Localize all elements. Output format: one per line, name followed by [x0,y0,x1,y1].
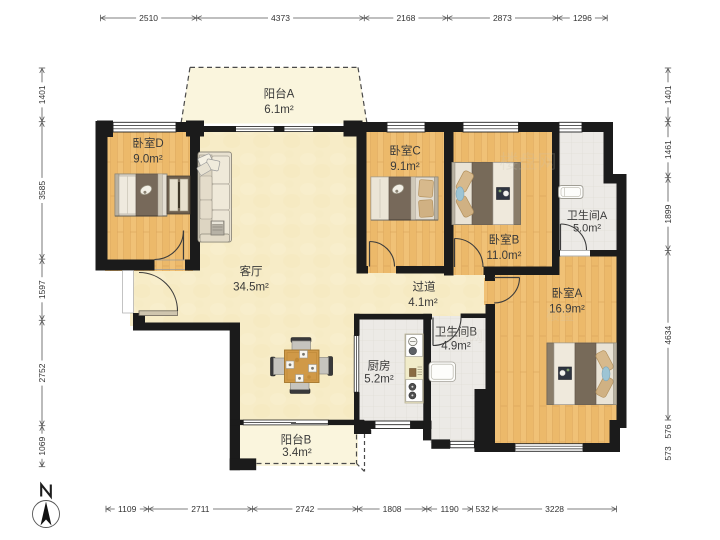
svg-text:楼盘: 楼盘 [546,307,574,323]
svg-text:1109: 1109 [118,504,137,514]
svg-text:1401: 1401 [37,85,47,104]
svg-text:卧室B: 卧室B [489,233,520,247]
svg-text:573: 573 [663,446,673,460]
svg-text:1296: 1296 [573,13,592,23]
svg-text:3585: 3585 [37,181,47,200]
svg-text:阳台A: 阳台A [264,87,295,101]
svg-text:532: 532 [476,504,490,514]
svg-text:4634: 4634 [663,325,673,344]
svg-text:4373: 4373 [271,13,290,23]
svg-text:9.1m²: 9.1m² [390,161,420,173]
svg-text:1899: 1899 [663,204,673,223]
svg-text:卧室A: 卧室A [552,286,583,300]
svg-text:6.1m²: 6.1m² [264,104,294,116]
svg-text:楼盘网: 楼盘网 [441,329,483,345]
svg-text:1190: 1190 [440,504,459,514]
svg-text:阳台B: 阳台B [281,433,312,447]
svg-text:2711: 2711 [191,504,210,514]
svg-text:卧室C: 卧室C [389,144,420,158]
svg-text:2873: 2873 [493,13,512,23]
svg-text:客厅: 客厅 [240,264,263,278]
svg-text:1401: 1401 [663,85,673,104]
svg-text:2752: 2752 [37,363,47,382]
svg-text:卧室D: 卧室D [132,136,163,150]
svg-text:卫生间A: 卫生间A [567,208,608,222]
svg-text:4.1m²: 4.1m² [408,297,438,309]
svg-text:34.5m²: 34.5m² [233,282,269,294]
svg-text:1808: 1808 [383,504,402,514]
svg-text:5.2m²: 5.2m² [364,374,394,386]
svg-text:1069: 1069 [37,436,47,455]
svg-text:2742: 2742 [295,504,314,514]
svg-text:楼盘网: 楼盘网 [499,151,556,173]
svg-text:1597: 1597 [37,280,47,299]
svg-text:2510: 2510 [139,13,158,23]
svg-text:3.4m²: 3.4m² [282,447,312,459]
svg-text:3228: 3228 [545,504,564,514]
svg-text:9.0m²: 9.0m² [133,154,163,166]
svg-text:过道: 过道 [413,280,436,294]
svg-text:1461: 1461 [663,140,673,159]
svg-text:2168: 2168 [396,13,415,23]
svg-text:厨房: 厨房 [368,360,391,373]
svg-text:5.0m²: 5.0m² [573,223,601,235]
svg-text:576: 576 [663,424,673,438]
svg-text:11.0m²: 11.0m² [487,250,522,262]
